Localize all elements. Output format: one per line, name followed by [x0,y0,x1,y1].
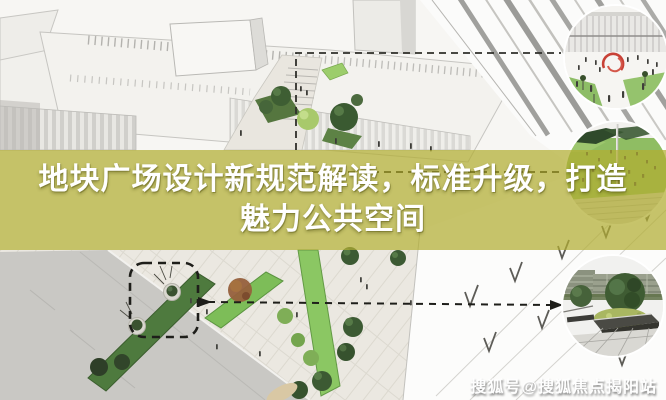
title-band: 地块广场设计新规范解读，标准升级，打造 魅力公共空间 [0,150,666,250]
inset-photo-bottom [563,256,663,356]
courtyard-tree [605,273,645,313]
inset-photo-top [565,6,666,108]
inset-bottom-art [563,256,663,356]
cover-title-line2: 魅力公共空间 [0,200,666,240]
watermark-sohu: 搜狐号@搜狐焦点揭阳站 [470,373,657,397]
inset-top-art [565,6,666,108]
article-cover: 地块广场设计新规范解读，标准升级，打造 魅力公共空间 搜狐号@搜狐焦点揭阳站 [0,0,666,400]
cover-title-line1: 地块广场设计新规范解读，标准升级，打造 [0,160,666,200]
